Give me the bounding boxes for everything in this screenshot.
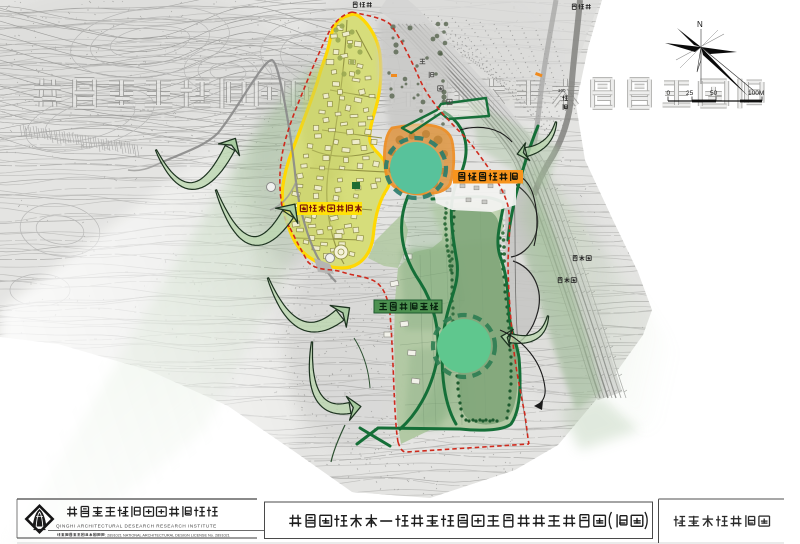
svg-text:QINGHI ARCHITECTURAL DESEARC: QINGHI ARCHITECTURAL DESEARCH RESEARCH I… — [56, 524, 217, 529]
svg-text:N: N — [697, 20, 703, 29]
svg-text:50: 50 — [710, 90, 718, 97]
svg-text:100M: 100M — [748, 90, 764, 97]
svg-text:0: 0 — [667, 90, 671, 97]
svg-text:: 2891021 NATIONAL ARCHITE: : 2891021 NATIONAL ARCHITECTURAL DESIGN … — [105, 534, 230, 538]
svg-text:25: 25 — [686, 90, 694, 97]
svg-text:100: 100 — [558, 88, 566, 93]
